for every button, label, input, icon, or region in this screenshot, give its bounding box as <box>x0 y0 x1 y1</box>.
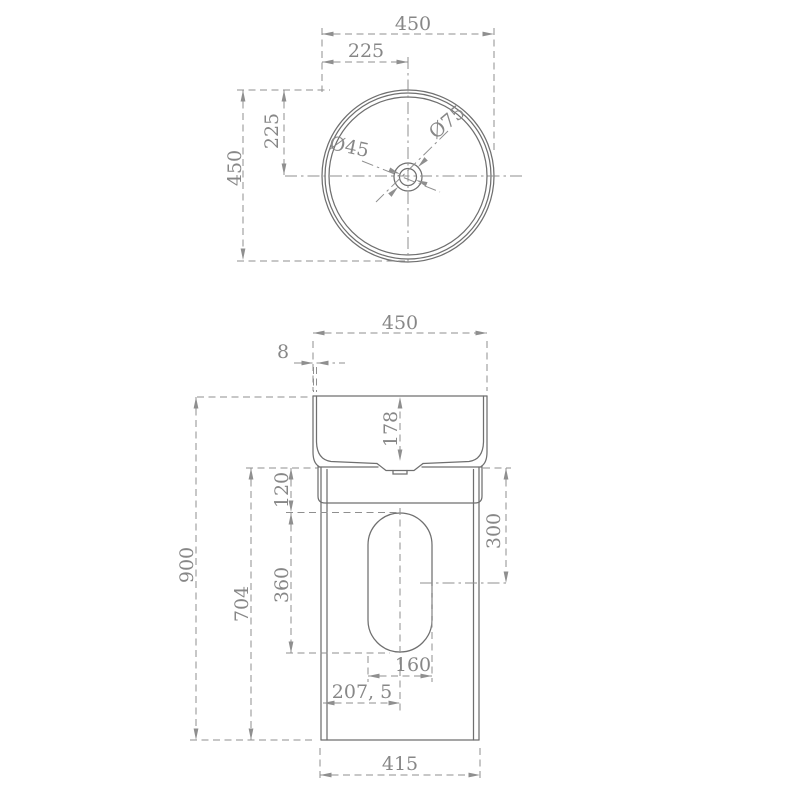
basin-base-band <box>318 467 482 504</box>
dim-cutout-width: 160 <box>368 654 432 678</box>
dim-pedestal-height: 704 <box>231 468 253 740</box>
dim-front-top-width: 450 <box>313 312 487 335</box>
dim-label-bowl-depth: 178 <box>380 411 402 447</box>
dim-top-overall-width: 450 <box>322 13 494 36</box>
top-view: 450 225 450 225 Ø45 <box>224 13 522 262</box>
dim-cutout-center-offset: 207, 5 <box>323 681 400 705</box>
dim-rim-thickness: 8 <box>277 341 345 365</box>
dim-label-top-overall-depth: 450 <box>224 150 246 186</box>
dim-cutout-height: 360 <box>271 513 293 653</box>
dim-outlet-center-offset: 300 <box>483 468 508 583</box>
dim-label-cutout-width: 160 <box>395 654 431 676</box>
dim-label-cutout-height: 360 <box>271 567 293 603</box>
dim-top-overall-depth: 450 <box>224 90 246 260</box>
dim-top-center-offset-x: 225 <box>322 40 408 64</box>
dim-label-rim-thickness: 8 <box>277 341 289 363</box>
dim-label-cutout-top-offset: 120 <box>271 472 293 508</box>
dim-label-top-center-offset-y: 225 <box>261 113 283 149</box>
dim-label-top-center-offset-x: 225 <box>348 40 384 62</box>
dim-label-base-width: 415 <box>382 753 418 775</box>
dim-top-center-offset-y: 225 <box>261 90 286 175</box>
dim-base-width: 415 <box>320 753 480 777</box>
pedestal-basin-drawing: 450 225 450 225 Ø45 <box>0 0 800 800</box>
technical-drawing-page: 450 225 450 225 Ø45 <box>0 0 800 800</box>
dim-bowl-depth: 178 <box>380 397 402 461</box>
dim-label-drain-hole-diameter: Ø45 <box>328 132 371 162</box>
dim-label-drain-recess-diameter: Ø75 <box>425 101 470 143</box>
dim-label-pedestal-height: 704 <box>231 586 253 622</box>
dim-label-outlet-center-offset: 300 <box>483 513 505 549</box>
dim-label-overall-height: 900 <box>176 547 198 583</box>
dim-label-cutout-center-offset: 207, 5 <box>332 681 392 703</box>
dim-label-front-top-width: 450 <box>382 312 418 334</box>
dim-overall-height: 900 <box>176 397 198 740</box>
dim-label-top-overall-width: 450 <box>395 13 431 35</box>
dim-drain-recess-diameter: Ø75 <box>376 101 469 202</box>
front-view: 450 8 178 900 704 <box>176 312 511 781</box>
front-view-extension-lines <box>190 341 511 781</box>
drain-recess-profile <box>377 464 423 471</box>
dim-cutout-top-offset: 120 <box>271 468 293 512</box>
